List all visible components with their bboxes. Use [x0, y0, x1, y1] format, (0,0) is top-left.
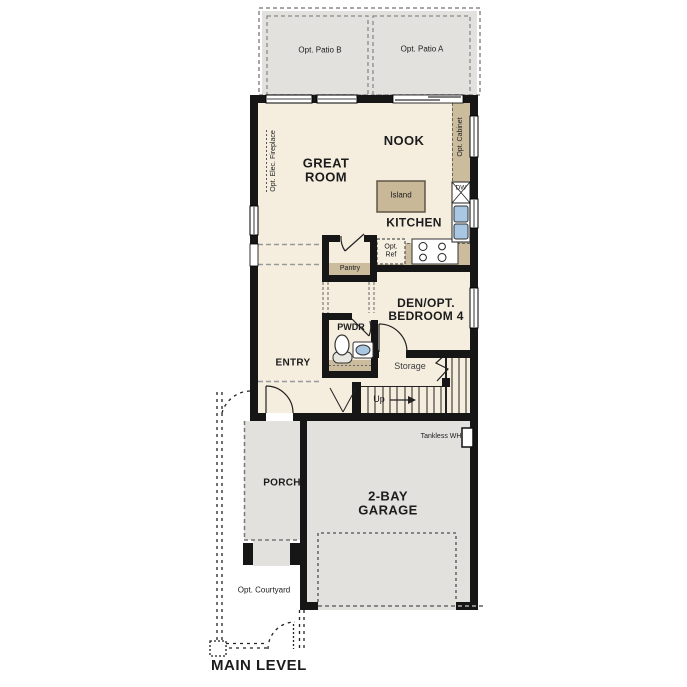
- courtyard-gate-arc: [268, 622, 295, 649]
- entry-label: ENTRY: [275, 358, 310, 369]
- patio-areas: [259, 8, 480, 95]
- kitchen-label: KITCHEN: [386, 216, 441, 229]
- porch-post-right: [290, 543, 300, 565]
- patio-b-label: Opt. Patio B: [298, 47, 341, 56]
- opt-courtyard-label: Opt. Courtyard: [237, 587, 291, 596]
- opt-ref-label: Opt. Ref: [380, 243, 402, 258]
- island-label: Island: [390, 192, 411, 201]
- den-label: DEN/OPT. BEDROOM 4: [380, 297, 472, 323]
- dw-label: DW: [456, 184, 467, 191]
- porch-label: PORCH: [263, 478, 301, 489]
- pantry-label: Pantry: [340, 265, 360, 273]
- porch-post-left: [243, 543, 253, 565]
- porch-stoop: [253, 540, 290, 566]
- floor-plan: Opt. Patio B Opt. Patio A GREAT ROOM NOO…: [0, 0, 687, 687]
- range-stove: [412, 239, 458, 264]
- pwdr-label: PWDR: [337, 323, 365, 333]
- great-room-label: GREAT ROOM: [291, 157, 361, 186]
- up-label: Up: [373, 395, 385, 405]
- courtyard-post: [210, 641, 226, 656]
- nook-label: NOOK: [384, 134, 425, 148]
- garage-label: 2-BAY GARAGE: [353, 490, 423, 519]
- plan-title: MAIN LEVEL: [211, 658, 307, 675]
- storage-label: Storage: [394, 362, 426, 372]
- patio-a-label: Opt. Patio A: [401, 46, 444, 55]
- tankless-wh-label: Tankless WH: [418, 433, 464, 441]
- opt-fireplace-label: Opt. Elec. Fireplace: [270, 130, 278, 191]
- floor-plan-drawing: [0, 0, 687, 687]
- toilet-bowl: [335, 335, 349, 355]
- kitchen-sink: [452, 203, 470, 242]
- opt-cabinet-label: Opt. Cabinet: [457, 117, 465, 156]
- courtyard-front-gate-arc: [222, 391, 252, 413]
- patio-slider-door: [393, 95, 463, 103]
